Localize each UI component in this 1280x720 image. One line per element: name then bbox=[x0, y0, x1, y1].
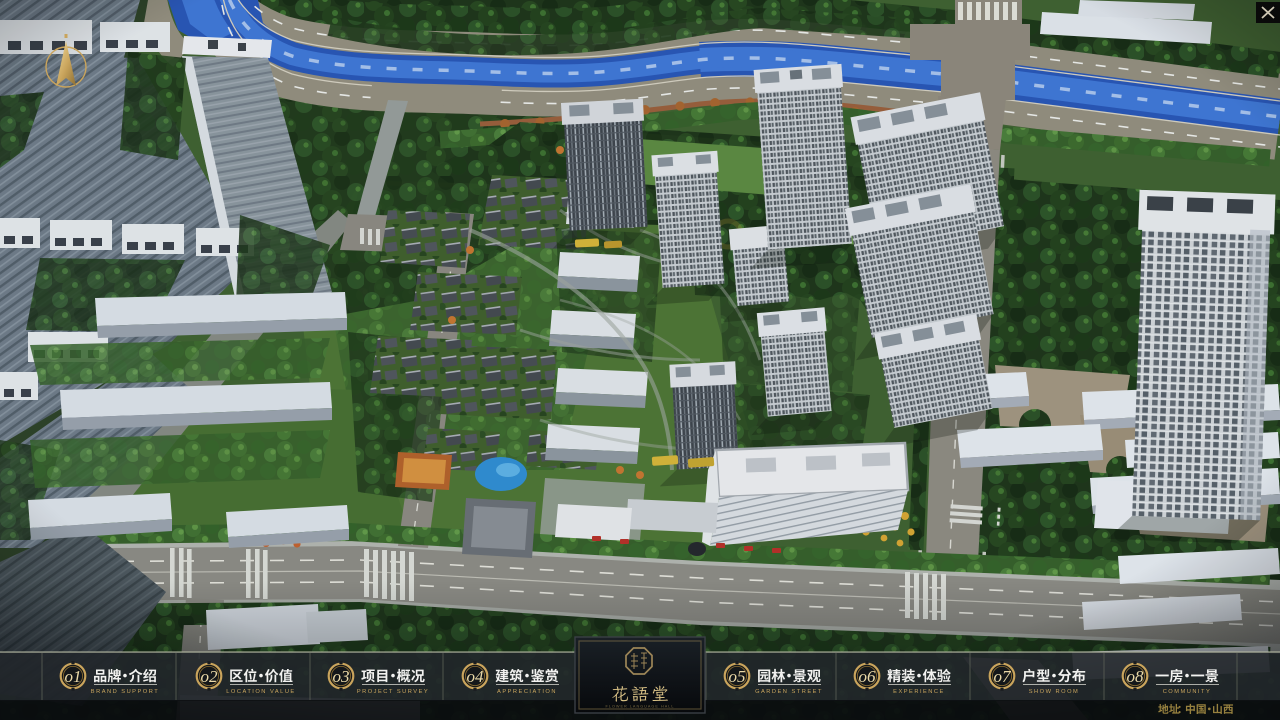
svg-text:SHOW ROOM: SHOW ROOM bbox=[1029, 689, 1079, 695]
svg-text:LOCATION VALUE: LOCATION VALUE bbox=[226, 689, 295, 695]
svg-text:o5: o5 bbox=[729, 667, 746, 686]
svg-text:o7: o7 bbox=[994, 667, 1013, 686]
svg-text:o2: o2 bbox=[201, 667, 219, 686]
svg-text:COMMUNITY: COMMUNITY bbox=[1163, 689, 1212, 695]
svg-text:GARDEN STREET: GARDEN STREET bbox=[755, 689, 823, 695]
svg-text:o3: o3 bbox=[333, 667, 350, 686]
svg-text:PROJECT SURVEY: PROJECT SURVEY bbox=[357, 689, 429, 695]
svg-text:FLOWER LANGUAGE HALL: FLOWER LANGUAGE HALL bbox=[606, 705, 675, 709]
svg-text:o6: o6 bbox=[859, 667, 877, 686]
svg-text:o4: o4 bbox=[467, 667, 485, 686]
svg-text:BRAND SUPPORT: BRAND SUPPORT bbox=[91, 689, 159, 695]
svg-text:EXPERIENCE: EXPERIENCE bbox=[893, 689, 945, 695]
svg-text:o8: o8 bbox=[1127, 667, 1145, 686]
svg-text:APPRECIATION: APPRECIATION bbox=[497, 689, 557, 695]
svg-text:o1: o1 bbox=[65, 667, 82, 686]
